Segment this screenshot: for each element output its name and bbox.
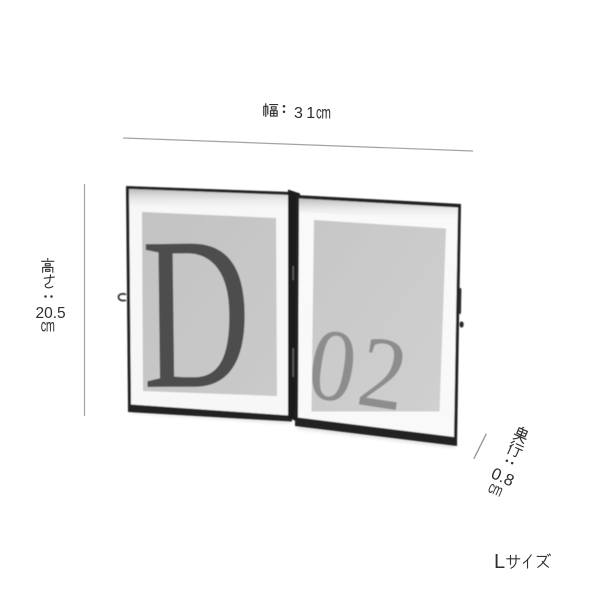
svg-text:cm: cm: [41, 317, 55, 336]
svg-text:L: L: [494, 551, 505, 573]
svg-text:cm: cm: [316, 104, 331, 123]
svg-text:02: 02: [301, 307, 419, 435]
svg-text:31: 31: [294, 105, 319, 122]
svg-text:D: D: [141, 192, 252, 434]
